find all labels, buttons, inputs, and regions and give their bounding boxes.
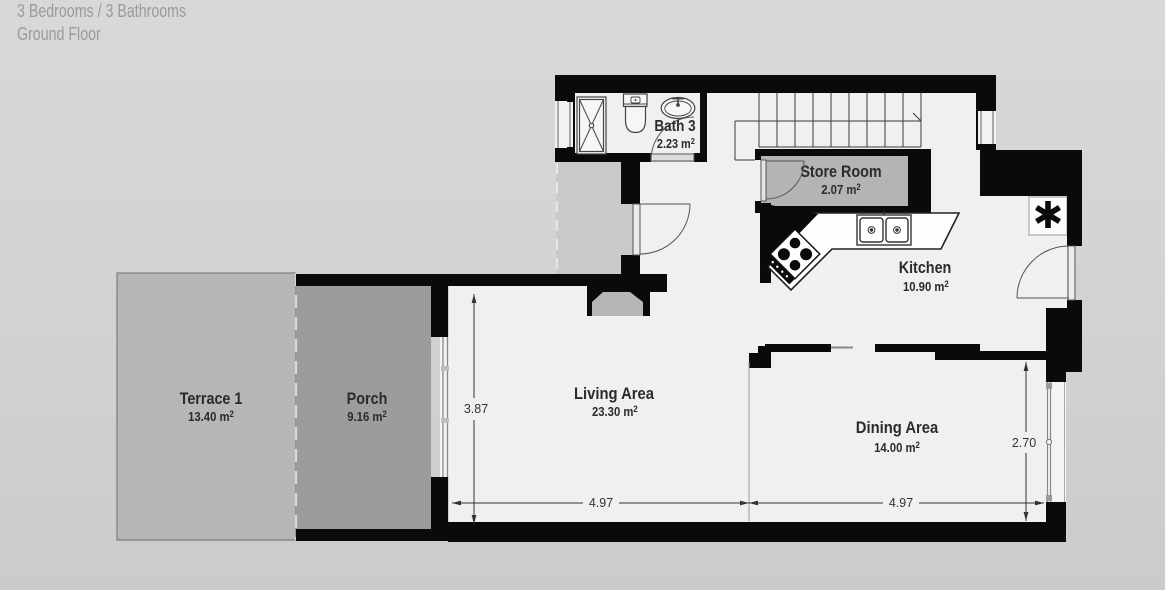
svg-text:14.00 m2: 14.00 m2 — [874, 439, 920, 455]
svg-text:Bath 3: Bath 3 — [654, 118, 695, 135]
svg-text:Dining Area: Dining Area — [856, 419, 939, 437]
svg-text:2.23 m2: 2.23 m2 — [657, 137, 695, 152]
svg-text:Ground Floor: Ground Floor — [17, 24, 101, 44]
svg-text:3 Bedrooms / 3 Bathrooms: 3 Bedrooms / 3 Bathrooms — [17, 1, 186, 21]
svg-text:Living Area: Living Area — [574, 385, 654, 403]
svg-text:4.97: 4.97 — [589, 496, 613, 510]
svg-text:3.87: 3.87 — [464, 402, 488, 416]
svg-text:2.70: 2.70 — [1012, 436, 1036, 450]
svg-text:23.30 m2: 23.30 m2 — [592, 403, 638, 419]
svg-text:4.97: 4.97 — [889, 496, 913, 510]
svg-text:Kitchen: Kitchen — [899, 259, 952, 277]
svg-text:Terrace 1: Terrace 1 — [180, 390, 243, 408]
svg-text:13.40 m2: 13.40 m2 — [188, 408, 234, 424]
svg-text:9.16 m2: 9.16 m2 — [347, 408, 387, 424]
svg-text:10.90 m2: 10.90 m2 — [903, 278, 949, 294]
svg-text:2.07 m2: 2.07 m2 — [821, 181, 861, 197]
svg-text:Store Room: Store Room — [800, 163, 881, 181]
svg-text:Porch: Porch — [347, 390, 388, 408]
